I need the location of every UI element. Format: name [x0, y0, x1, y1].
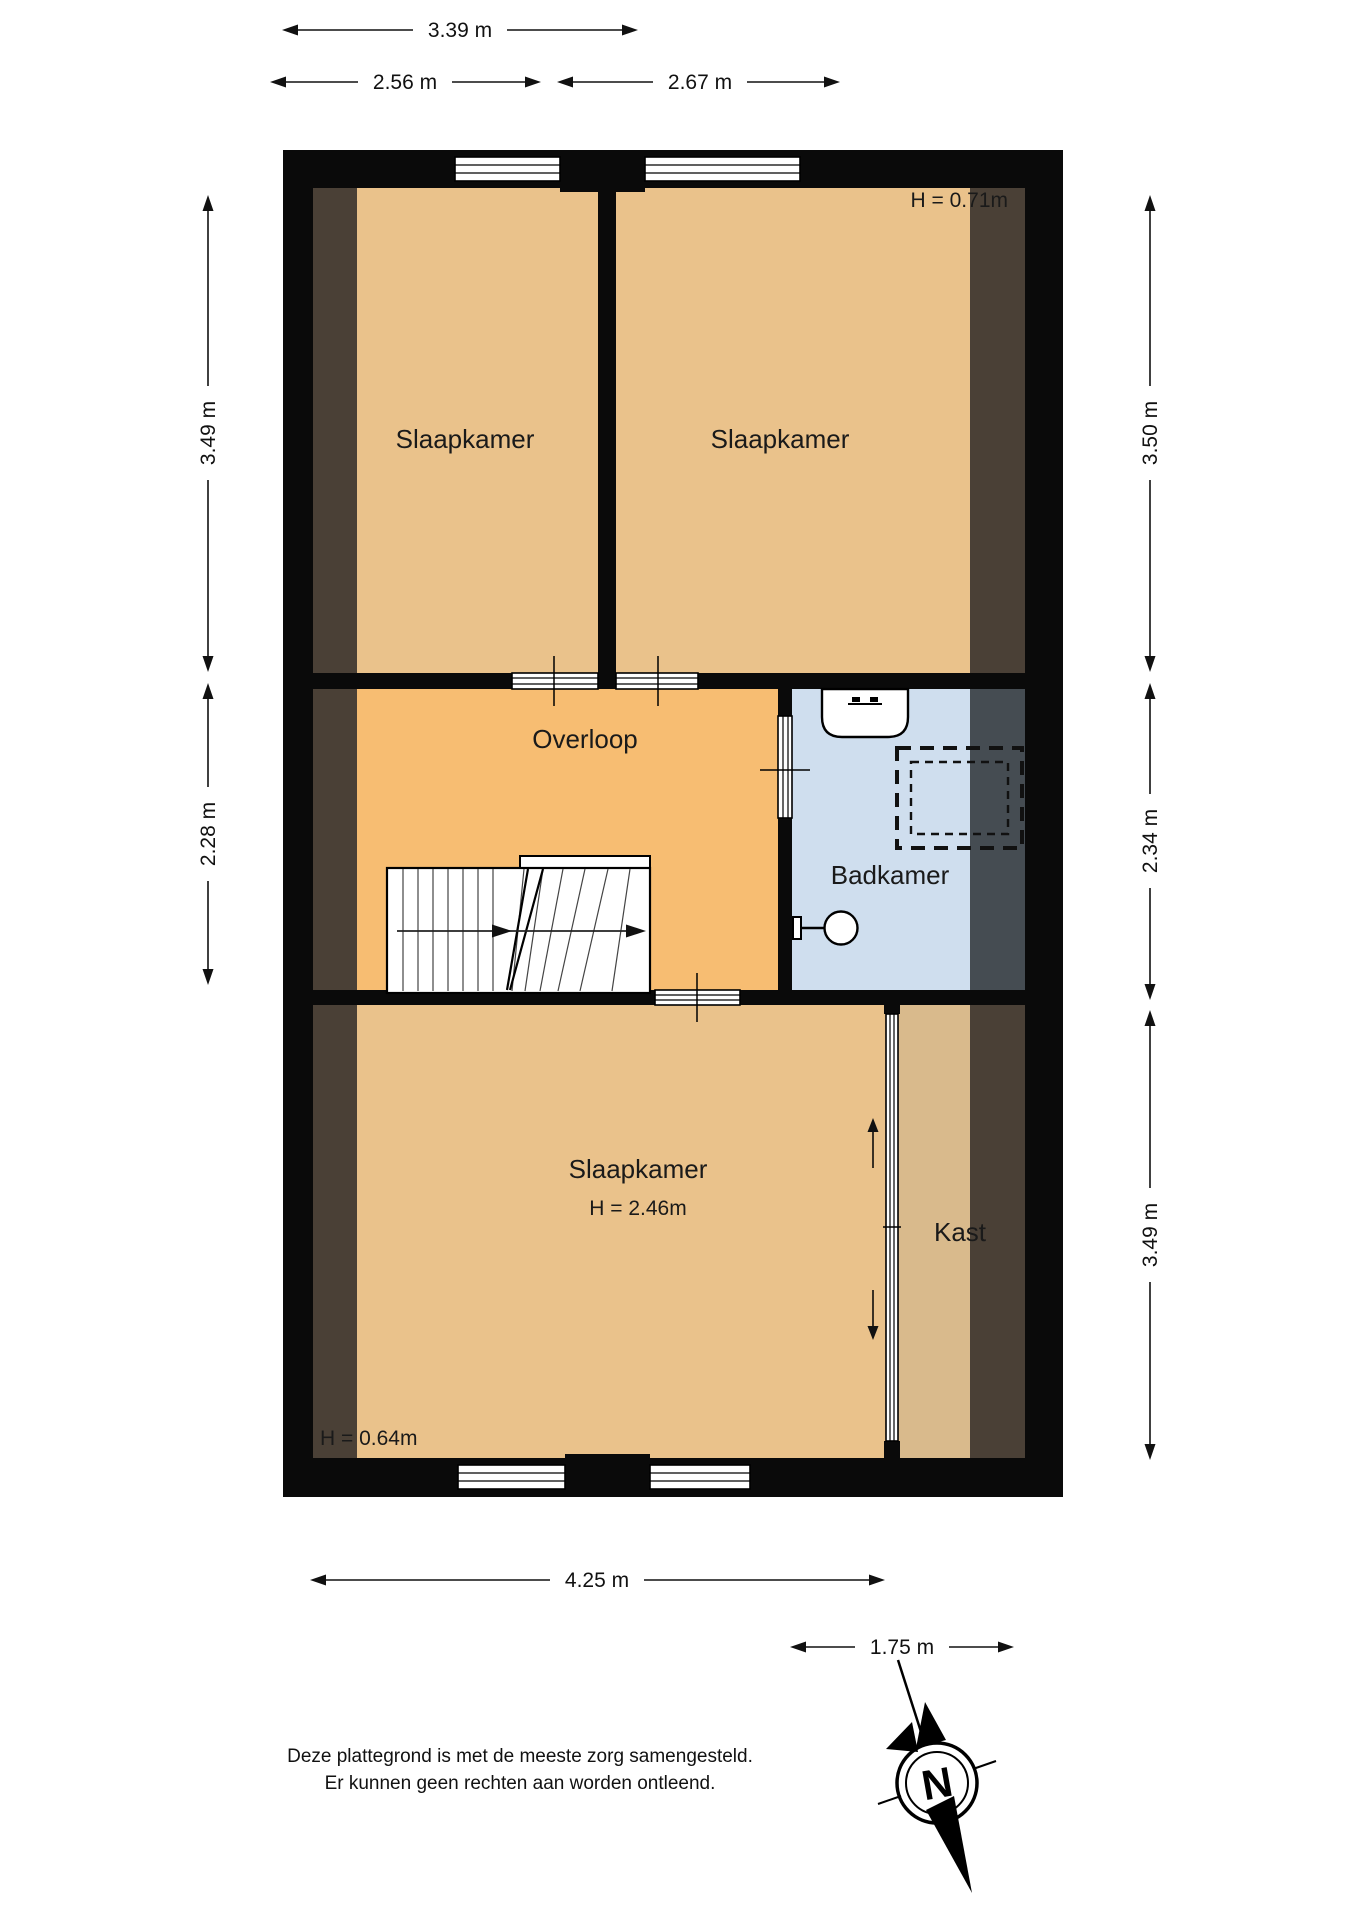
room-bedroom-bottom	[313, 1005, 886, 1458]
pier-top-windows	[560, 150, 645, 192]
label-bedroom-bottom: Slaapkamer	[569, 1154, 708, 1184]
svg-text:3.49 m: 3.49 m	[1139, 1203, 1162, 1267]
north-compass: N	[878, 1660, 996, 1893]
note-height-top-right: H = 0.71m	[911, 189, 1008, 212]
attic-strip-right-bathroom	[970, 689, 1025, 990]
note-height-bottom: H = 2.46m	[589, 1197, 686, 1220]
compass-spike-left	[886, 1722, 918, 1752]
dimension-right-lower: 3.49 m	[1139, 1010, 1162, 1460]
floorplan-canvas: Slaapkamer Slaapkamer H = 0.71m Overloop…	[0, 0, 1358, 1920]
disclaimer-block: Deze plattegrond is met de meeste zorg s…	[287, 1746, 753, 1794]
dimension-right-upper: 3.50 m	[1139, 195, 1162, 672]
wall-bedrooms-landing-a	[313, 673, 512, 689]
label-overloop: Overloop	[532, 724, 638, 754]
dimension-left-middle: 2.28 m	[197, 683, 220, 985]
wall-bathroom-left-b	[778, 818, 792, 990]
wall-bedroom-divider	[598, 188, 616, 681]
wall-exterior-right	[1025, 150, 1063, 1497]
wall-landing-bedroom-b	[740, 990, 1025, 1005]
svg-text:4.25 m: 4.25 m	[565, 1569, 629, 1592]
stub-partition-top	[884, 1005, 900, 1014]
svg-text:2.56 m: 2.56 m	[373, 71, 437, 94]
dimension-top-right: 2.67 m	[557, 71, 840, 94]
compass-spike-top	[916, 1702, 946, 1748]
pier-bottom-windows	[565, 1454, 650, 1497]
room-fills	[313, 188, 1025, 1458]
dimension-bottom-closet: 1.75 m	[790, 1636, 1014, 1659]
window-symbol-bottom-right	[650, 1465, 750, 1489]
svg-text:3.49 m: 3.49 m	[197, 401, 220, 465]
svg-text:2.34 m: 2.34 m	[1139, 809, 1162, 873]
dimension-bottom-main: 4.25 m	[310, 1569, 885, 1592]
svg-text:2.67 m: 2.67 m	[668, 71, 732, 94]
note-height-bottom-left: H = 0.64m	[320, 1427, 417, 1450]
dimension-top-total: 3.39 m	[282, 19, 638, 42]
dimension-left-upper: 3.49 m	[197, 195, 220, 672]
wall-exterior-left	[283, 150, 313, 1497]
svg-text:3.50 m: 3.50 m	[1139, 401, 1162, 465]
window-symbol-bottom-left	[458, 1465, 565, 1489]
floorplan-page: Slaapkamer Slaapkamer H = 0.71m Overloop…	[0, 0, 1358, 1920]
staircase	[387, 856, 650, 993]
wall-bathroom-left-a	[778, 689, 792, 716]
stub-partition-bottom	[884, 1441, 900, 1458]
dimension-right-middle: 2.34 m	[1139, 683, 1162, 1000]
disclaimer-line-2: Er kunnen geen rechten aan worden ontlee…	[325, 1773, 716, 1794]
attic-strip-right-top	[970, 188, 1025, 675]
dimension-top-left: 2.56 m	[270, 71, 541, 94]
label-bedroom-top-right: Slaapkamer	[711, 424, 850, 454]
svg-text:1.75 m: 1.75 m	[870, 1636, 934, 1659]
label-kast: Kast	[934, 1217, 987, 1247]
svg-text:2.28 m: 2.28 m	[197, 802, 220, 866]
sink-fixture	[822, 689, 908, 737]
window-symbol-top-right	[645, 157, 800, 181]
attic-strip-left	[313, 188, 357, 1458]
svg-text:3.39 m: 3.39 m	[428, 19, 492, 42]
label-bedroom-top-left: Slaapkamer	[396, 424, 535, 454]
disclaimer-line-1: Deze plattegrond is met de meeste zorg s…	[287, 1746, 753, 1767]
window-symbol-top-left	[455, 157, 560, 181]
label-badkamer: Badkamer	[831, 860, 950, 890]
wall-bedrooms-landing-c	[698, 673, 1025, 689]
